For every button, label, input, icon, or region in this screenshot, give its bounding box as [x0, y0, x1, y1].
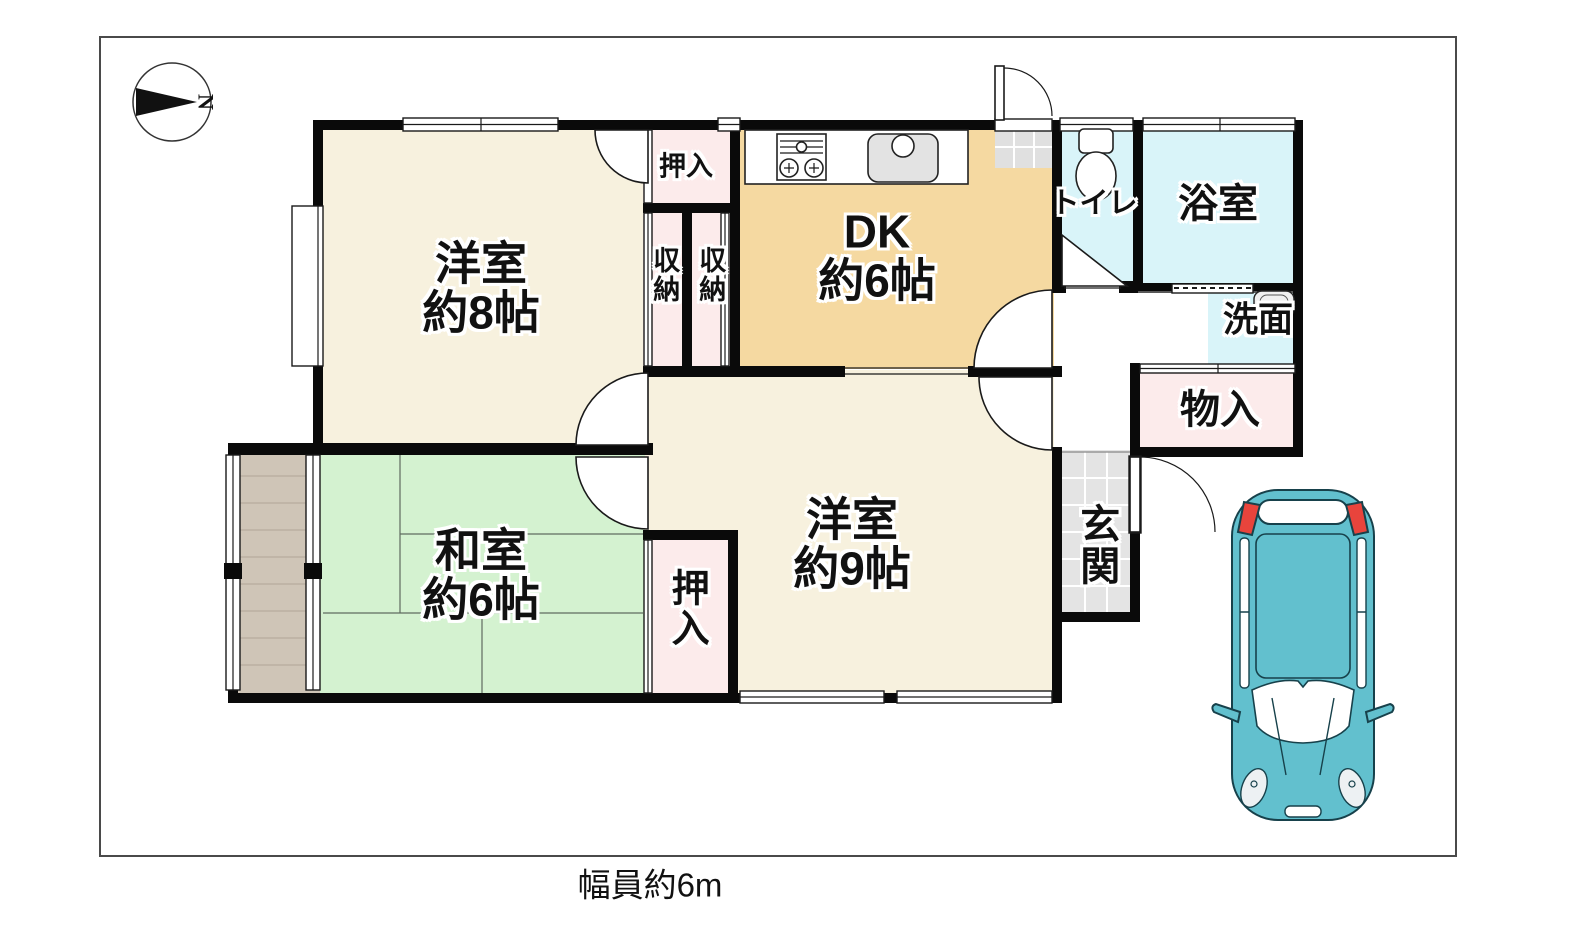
label-western8: 洋室 約8帖 — [422, 239, 540, 337]
label-closet-top: 押入 — [659, 153, 713, 182]
label-bath: 浴室 — [1178, 183, 1258, 225]
car-icon — [1212, 490, 1393, 820]
label-entrance: 玄関 — [1075, 503, 1117, 587]
kitchen-counter — [745, 130, 968, 184]
label-shuno-left: 収納 — [650, 246, 679, 304]
label-dk: DK 約6帖 — [818, 207, 936, 305]
road-width-label: 幅員約6m — [578, 869, 723, 904]
kitchen-sink-icon — [868, 134, 938, 182]
stove-icon — [777, 134, 826, 180]
label-japanese6: 和室 約6帖 — [422, 526, 540, 624]
label-closet-bottom: 押入 — [666, 568, 706, 648]
label-washroom: 洗面 — [1223, 301, 1293, 338]
label-storage: 物入 — [1180, 389, 1260, 431]
label-toilet: トイレ — [1050, 189, 1137, 220]
label-western9: 洋室 約9帖 — [793, 495, 911, 593]
floor-plan-drawing: N — [0, 0, 1578, 942]
compass-north-label: N — [194, 94, 219, 110]
floor-plan-page: N — [0, 0, 1578, 942]
label-shuno-right: 収納 — [696, 246, 725, 304]
